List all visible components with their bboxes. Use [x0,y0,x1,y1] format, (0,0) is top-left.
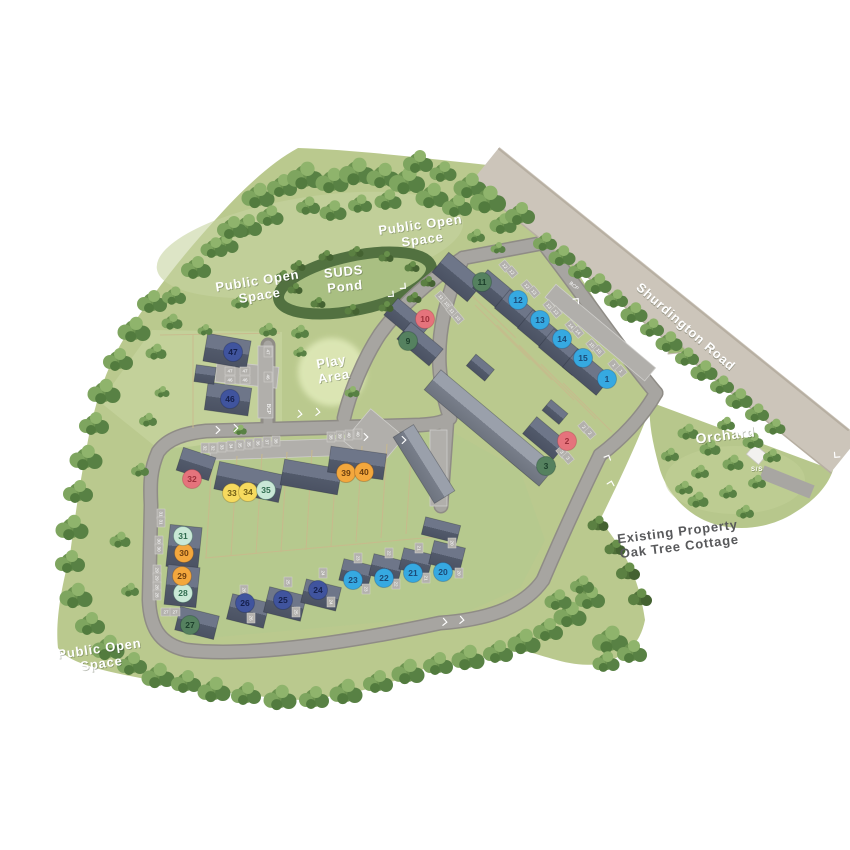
svg-text:28: 28 [154,584,159,590]
plot-marker-47[interactable]: 47 [224,343,243,362]
plot-marker-31[interactable]: 31 [174,527,193,546]
svg-text:26: 26 [241,587,246,593]
svg-text:35: 35 [237,442,242,448]
svg-text:11: 11 [478,277,487,287]
svg-text:1: 1 [605,374,610,384]
svg-text:29: 29 [154,575,159,581]
svg-text:2: 2 [565,436,570,446]
svg-text:22: 22 [393,581,398,587]
svg-text:46: 46 [265,374,270,380]
svg-text:35: 35 [261,485,271,495]
plot-marker-23[interactable]: 23 [344,571,363,590]
site-plan-map: 1212121313131414151511111011102233333435… [0,0,850,850]
svg-text:27: 27 [163,610,169,615]
svg-text:46: 46 [225,394,235,404]
svg-text:25: 25 [278,595,288,605]
svg-text:36: 36 [255,440,260,446]
svg-text:32: 32 [210,445,215,451]
svg-text:37: 37 [264,439,269,445]
svg-text:33: 33 [227,488,237,498]
svg-text:35: 35 [246,441,251,447]
svg-text:38: 38 [328,434,333,440]
svg-text:47: 47 [227,369,233,374]
svg-text:38: 38 [273,438,278,444]
svg-text:20: 20 [456,570,461,576]
svg-text:20: 20 [449,540,454,546]
svg-text:31: 31 [158,519,163,525]
svg-text:20: 20 [438,567,448,577]
svg-text:23: 23 [355,555,360,561]
plot-marker-28[interactable]: 28 [174,584,193,603]
plot-marker-40[interactable]: 40 [355,463,374,482]
svg-text:24: 24 [320,570,325,576]
svg-text:25: 25 [285,579,290,585]
svg-text:31: 31 [158,511,163,517]
svg-text:24: 24 [313,585,323,595]
svg-text:34: 34 [243,487,253,497]
plot-marker-27[interactable]: 27 [181,616,200,635]
plot-marker-22[interactable]: 22 [375,569,394,588]
plot-marker-13[interactable]: 13 [531,311,550,330]
svg-text:30: 30 [179,548,189,558]
svg-text:47: 47 [265,349,270,355]
svg-text:21: 21 [408,568,418,578]
svg-text:47: 47 [242,369,248,374]
svg-text:27: 27 [185,620,195,630]
svg-text:26: 26 [240,598,250,608]
plot-marker-14[interactable]: 14 [553,330,572,349]
plot-marker-30[interactable]: 30 [175,544,194,563]
plot-marker-24[interactable]: 24 [309,581,328,600]
svg-text:23: 23 [363,586,368,592]
svg-text:23: 23 [348,575,358,585]
svg-text:24: 24 [328,599,333,605]
svg-text:39: 39 [337,433,342,439]
plot-marker-21[interactable]: 21 [404,564,423,583]
plot-marker-3[interactable]: 3 [537,457,556,476]
plot-marker-35[interactable]: 35 [257,481,276,500]
svg-text:39: 39 [341,468,351,478]
svg-text:10: 10 [420,314,430,324]
plot-marker-9[interactable]: 9 [399,332,418,351]
svg-text:31: 31 [178,531,188,541]
svg-text:28: 28 [178,588,188,598]
svg-text:26: 26 [248,615,253,621]
svg-text:47: 47 [228,347,238,357]
map-label-suds-pond: SUDSPond [323,262,365,296]
plot-marker-32[interactable]: 32 [183,470,202,489]
svg-text:28: 28 [154,592,159,598]
map-label-existing-property: Existing PropertyOak Tree Cottage [616,517,740,562]
map-label-play-area: PlayArea [314,351,351,386]
svg-text:21: 21 [416,545,421,551]
plot-marker-26[interactable]: 26 [236,594,255,613]
svg-text:46: 46 [242,378,248,383]
plot-marker-46[interactable]: 46 [221,390,240,409]
plot-marker-15[interactable]: 15 [574,349,593,368]
plot-marker-39[interactable]: 39 [337,464,356,483]
svg-text:13: 13 [535,315,545,325]
plot-marker-34[interactable]: 34 [239,483,258,502]
svg-text:27: 27 [172,610,178,615]
svg-text:30: 30 [156,546,161,552]
map-label-substation: S/S [751,467,763,473]
svg-text:40: 40 [359,467,369,477]
svg-text:29: 29 [177,571,187,581]
svg-text:14: 14 [557,334,567,344]
site-plan-page: 1212121313131414151511111011102233333435… [0,0,850,850]
plot-marker-20[interactable]: 20 [434,563,453,582]
svg-text:32: 32 [187,474,197,484]
svg-text:15: 15 [578,353,588,363]
plot-marker-29[interactable]: 29 [173,567,192,586]
plot-marker-12[interactable]: 12 [509,291,528,310]
svg-text:34: 34 [228,443,233,449]
svg-text:29: 29 [154,567,159,573]
plot-marker-10[interactable]: 10 [416,310,435,329]
svg-text:46: 46 [227,378,233,383]
bcp-road-label: BCP [265,404,271,415]
svg-text:30: 30 [156,538,161,544]
svg-text:22: 22 [386,550,391,556]
svg-text:12: 12 [513,295,523,305]
svg-text:40: 40 [355,431,360,437]
svg-text:3: 3 [544,461,549,471]
svg-text:33: 33 [219,444,224,450]
svg-text:22: 22 [379,573,389,583]
plot-marker-2[interactable]: 2 [558,432,577,451]
svg-text:40: 40 [346,432,351,438]
svg-text:25: 25 [293,609,298,615]
svg-text:21: 21 [423,575,428,581]
plot-marker-11[interactable]: 11 [473,273,492,292]
plot-marker-25[interactable]: 25 [274,591,293,610]
svg-text:32: 32 [202,445,207,451]
plot-marker-1[interactable]: 1 [598,370,617,389]
svg-text:9: 9 [406,336,411,346]
